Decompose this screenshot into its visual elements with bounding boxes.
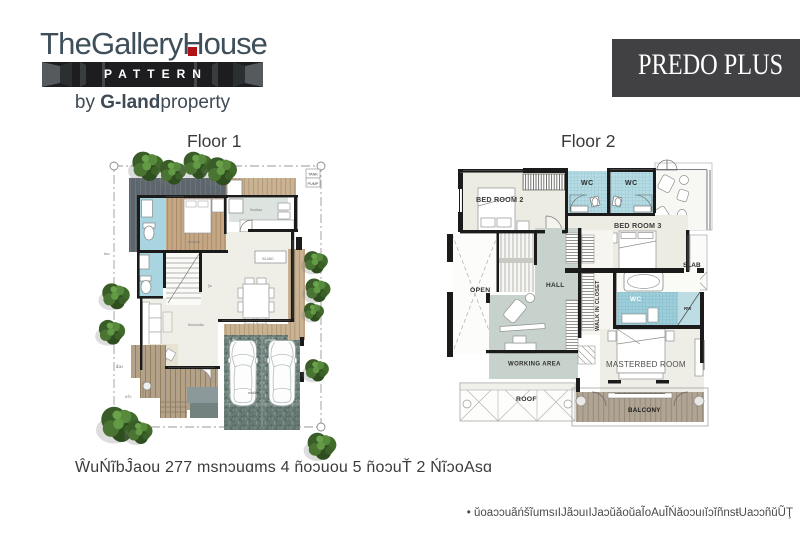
svg-text:đù: đù: [232, 338, 236, 342]
svg-text:MASTERBED ROOM: MASTERBED ROOM: [606, 360, 686, 369]
svg-text:ROOF: ROOF: [516, 396, 537, 403]
svg-text:ãɔu: ãɔu: [104, 252, 110, 256]
svg-text:WC: WC: [630, 296, 642, 303]
svg-text:SLAB: SLAB: [683, 262, 701, 269]
svg-text:PUMP: PUMP: [308, 182, 319, 186]
svg-text:BED ROOM 2: BED ROOM 2: [476, 195, 524, 204]
svg-text:ISLAND: ISLAND: [262, 257, 274, 261]
svg-text:BED ROOM 3: BED ROOM 3: [614, 221, 662, 230]
svg-text:ñooAso: ñooAso: [250, 208, 262, 212]
svg-text:WORKING AREA: WORKING AREA: [508, 362, 561, 368]
svg-text:HALL: HALL: [546, 282, 565, 289]
svg-text:WC: WC: [625, 180, 638, 187]
svg-text:ōoosa: ōoosa: [266, 338, 276, 342]
svg-text:WALK IN CLOSET: WALK IN CLOSET: [595, 280, 601, 331]
svg-text:WC: WC: [581, 180, 594, 187]
svg-text:ñoouìoiãu: ñoouìoiãu: [188, 323, 204, 327]
svg-text:ĵĩu: ĵĩu: [207, 284, 212, 288]
svg-text:ŵŤü: ŵŤü: [125, 394, 132, 399]
svg-text:nioiūo: nioiūo: [248, 391, 258, 395]
svg-text:TANK: TANK: [308, 173, 318, 177]
svg-text:BALCONY: BALCONY: [628, 407, 661, 414]
svg-text:ãɔu: ãɔu: [116, 364, 123, 369]
svg-text:OPEN: OPEN: [470, 287, 490, 294]
svg-text:RW: RW: [684, 306, 692, 311]
svg-text:ñoouou: ñoouou: [188, 240, 200, 244]
